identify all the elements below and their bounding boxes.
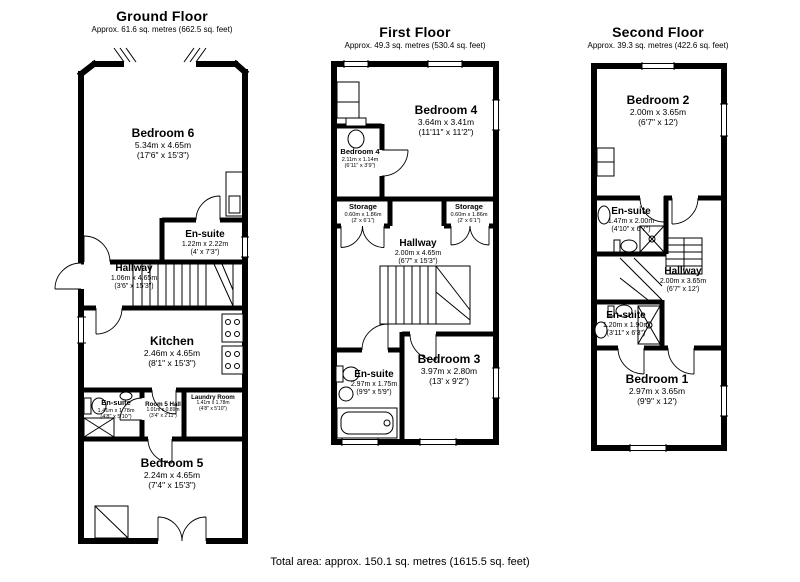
room-label-ensuite-ground: En-suite 1.22m x 2.22m (4' x 7'3") — [166, 229, 244, 257]
total-area-note: Total area: approx. 150.1 sq. metres (16… — [200, 556, 600, 568]
first-floor-header: First Floor Approx. 49.3 sq. metres (530… — [315, 24, 515, 50]
cupboard-bedroom6 — [226, 172, 243, 216]
room-label-laundry-room: Laundry Room 1.41m x 1.78m (4'8" x 5'10"… — [188, 394, 238, 413]
room-label-room5-hall: Room 5 Hall 1.01m x 0.89m (3'4" x 2'11") — [144, 401, 182, 420]
floorplan-page: Ground Floor Approx. 61.6 sq. metres (66… — [0, 0, 800, 582]
ground-floor-title: Ground Floor — [62, 8, 262, 24]
second-floor-title: Second Floor — [558, 24, 758, 40]
room-label-bedroom-4-small: Bedroom 4 2.11m x 1.14m (6'11" x 3'9") — [331, 148, 389, 170]
room-label-ensuite-second-upper: En-suite 1.47m x 2.00m (4'10" x 6'7") — [599, 206, 663, 234]
room-label-hallway-second: Hallway 2.00m x 3.65m (6'7" x 12') — [648, 266, 718, 294]
room-label-hallway-ground: Hallway 1.06m x 4.65m (3'6" x 15'3") — [84, 263, 184, 291]
entry-steps-hatching — [114, 48, 206, 62]
room-label-bedroom-2: Bedroom 2 2.00m x 3.65m (6'7" x 12') — [608, 93, 708, 127]
room-label-hallway-first: Hallway 2.00m x 4.65m (6'7" x 15'3") — [372, 238, 464, 266]
room-label-kitchen: Kitchen 2.46m x 4.65m (8'1" x 15'3") — [112, 334, 232, 368]
room-label-ensuite-ground-2: En-suite 1.41m x 1.78m (4'8" x 5'10") — [88, 399, 144, 421]
room-label-bedroom-3: Bedroom 3 3.97m x 2.80m (13' x 9'2") — [403, 352, 495, 386]
room-label-storage-left: Storage 0.60m x 1.86m (2' x 6'1") — [335, 203, 391, 225]
cupboard-bedroom2 — [597, 148, 614, 176]
room-label-bedroom-1: Bedroom 1 2.97m x 3.65m (9'9" x 12') — [607, 372, 707, 406]
room-label-ensuite-second-lower: En-suite 1.20m x 1.90m (3'11" x 6'3") — [595, 310, 657, 338]
room-label-storage-right: Storage 0.60m x 1.86m (2' x 6'1") — [441, 203, 497, 225]
second-floor-header: Second Floor Approx. 39.3 sq. metres (42… — [558, 24, 758, 50]
stairs-first — [380, 266, 470, 324]
second-floor-subtitle: Approx. 39.3 sq. metres (422.6 sq. feet) — [558, 41, 758, 50]
ground-floor-subtitle: Approx. 61.6 sq. metres (662.5 sq. feet) — [62, 25, 262, 34]
wardrobe-bedroom5 — [95, 506, 128, 538]
first-floor-title: First Floor — [315, 24, 515, 40]
wc-fixtures-first — [337, 82, 366, 148]
room-label-bedroom-6: Bedroom 6 5.34m x 4.65m (17'6" x 15'3") — [103, 126, 223, 160]
ground-floor-header: Ground Floor Approx. 61.6 sq. metres (66… — [62, 8, 262, 34]
room-label-bedroom-4: Bedroom 4 3.64m x 3.41m (11'11" x 11'2") — [398, 103, 494, 137]
room-label-bedroom-5: Bedroom 5 2.24m x 4.65m (7'4" x 15'3") — [112, 456, 232, 490]
room-label-ensuite-first: En-suite 2.97m x 1.75m (9'9" x 5'9") — [342, 369, 406, 397]
first-floor-subtitle: Approx. 49.3 sq. metres (530.4 sq. feet) — [315, 41, 515, 50]
